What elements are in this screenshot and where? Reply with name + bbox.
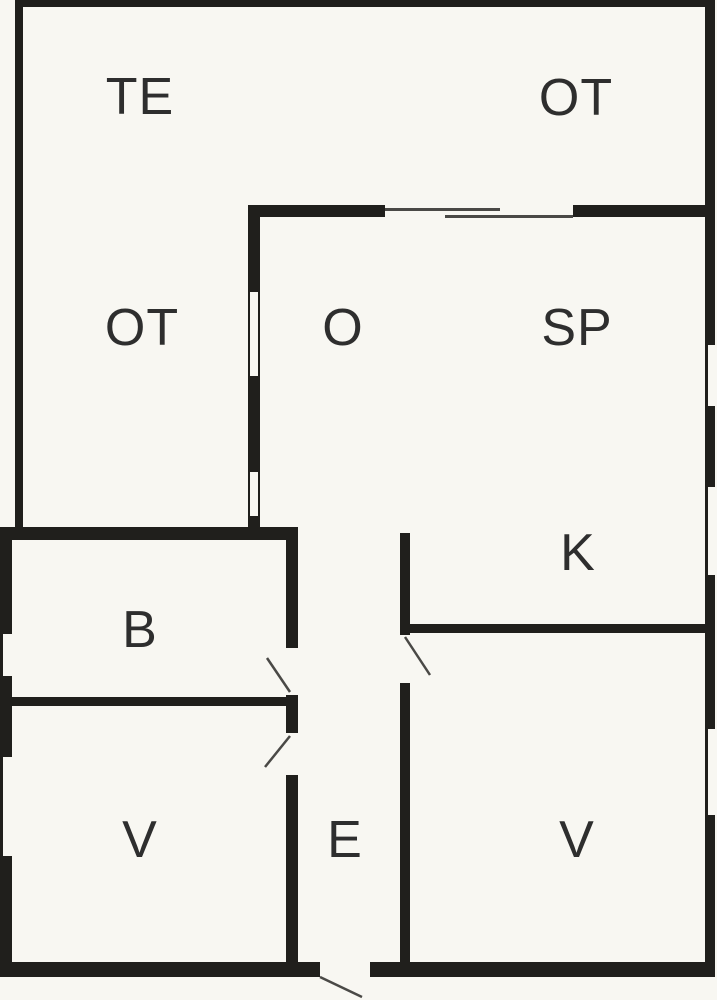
- bath-door-opening: [286, 648, 298, 695]
- wall-terrace-top: [15, 0, 715, 7]
- window-left-lower: [0, 755, 12, 858]
- window-terrace-lower: [248, 470, 260, 518]
- wall-entry-east: [400, 683, 410, 962]
- entrance-door-swing: [320, 977, 362, 997]
- room-label-sp: SP: [541, 298, 612, 358]
- window-right-middle: [705, 485, 715, 577]
- sliding-door-opening: [385, 205, 573, 217]
- room-label-ot-left: OT: [105, 298, 179, 358]
- entrance-door-opening: [320, 962, 370, 977]
- floor-plan: TE OT OT O SP B K V E V: [0, 0, 717, 1000]
- room-left-door-opening: [286, 733, 298, 775]
- wall-bath-room-divider: [12, 697, 287, 706]
- room-right-door-opening: [400, 635, 410, 683]
- window-right-lower: [705, 727, 715, 817]
- wall-kitchen-stub: [400, 533, 410, 635]
- wall-outer-left: [0, 527, 12, 977]
- window-left-upper: [0, 632, 12, 678]
- room-label-v-right: V: [559, 810, 595, 870]
- room-label-ot-top: OT: [539, 68, 613, 128]
- window-terrace-upper: [248, 290, 260, 378]
- room-label-b: B: [122, 600, 158, 660]
- room-label-k: K: [560, 523, 596, 583]
- window-right-upper: [705, 343, 715, 408]
- room-label-te: TE: [106, 67, 174, 127]
- room-label-v-left: V: [122, 810, 158, 870]
- wall-terrace-left: [15, 0, 23, 530]
- room-label-e: E: [327, 810, 363, 870]
- wall-kitchen-south: [400, 624, 705, 633]
- wall-bath-north: [0, 527, 298, 540]
- room-label-o: O: [322, 298, 363, 358]
